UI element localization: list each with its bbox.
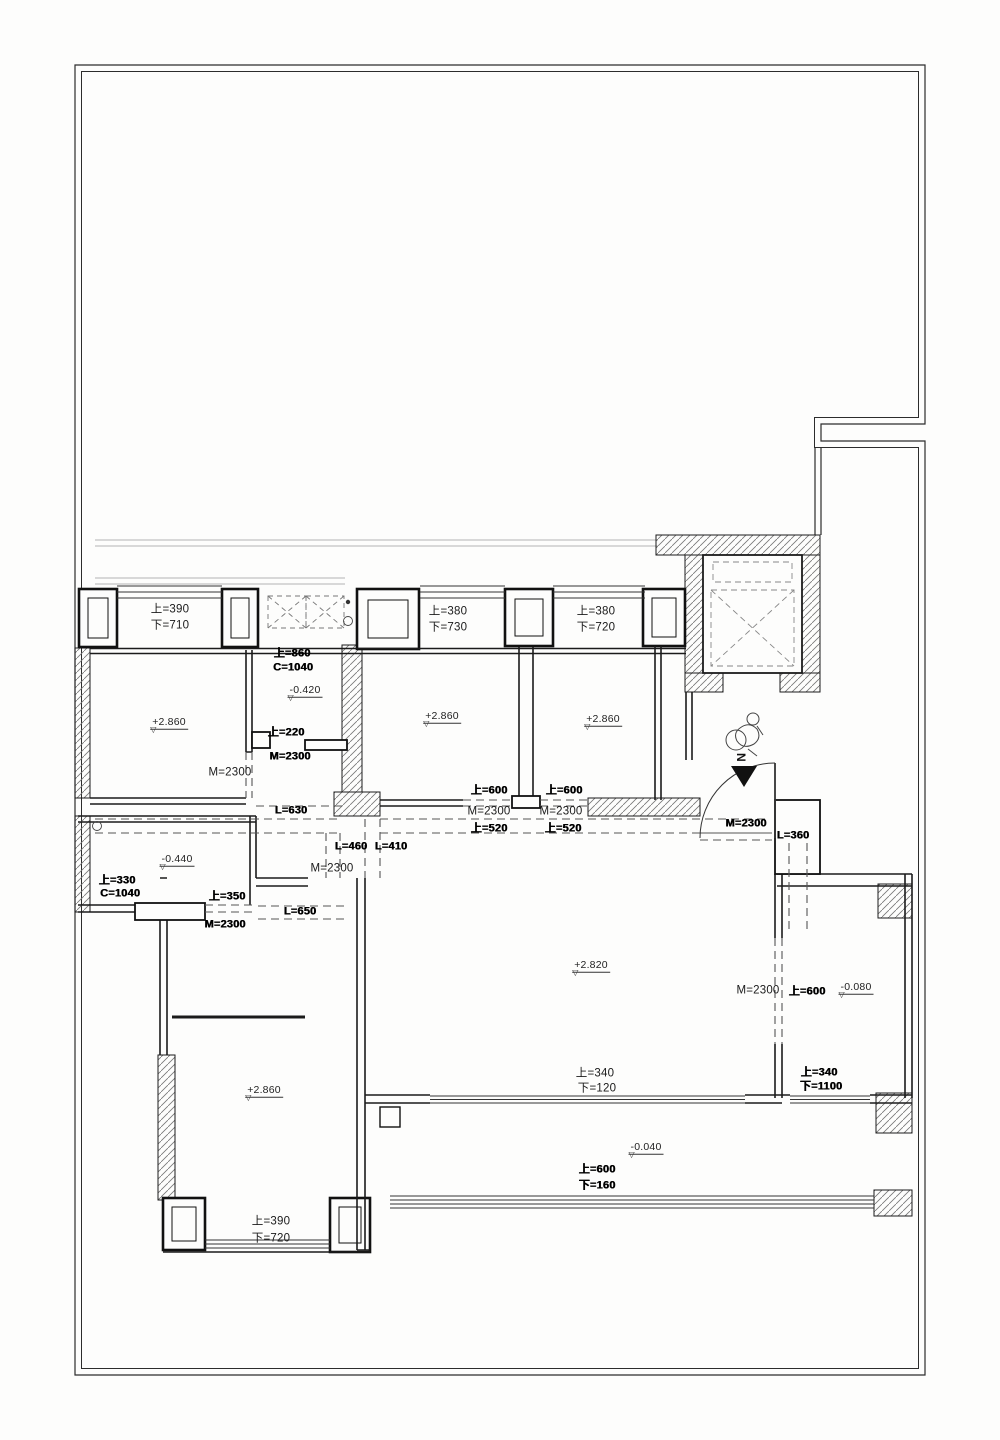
dashed-demolition-lines bbox=[95, 752, 807, 1044]
north-arrow-icon: N bbox=[731, 753, 757, 787]
floor-plan-drawing: N bbox=[0, 0, 1000, 1440]
dot-fixture bbox=[346, 600, 350, 604]
person-figure-icon bbox=[726, 713, 763, 756]
round-fixture bbox=[344, 617, 353, 626]
walls bbox=[78, 646, 912, 1252]
round-fixture bbox=[93, 822, 102, 831]
roof-edge-lines bbox=[95, 540, 658, 584]
north-label: N bbox=[734, 753, 748, 762]
windows bbox=[117, 586, 874, 1252]
elevator-shaft bbox=[703, 555, 802, 673]
ceiling-fixture bbox=[268, 596, 344, 628]
floor-plan-sheet: N 上=390下=710上=380下=730上=380下=720上=860C=1… bbox=[0, 0, 1000, 1440]
wall-piers bbox=[135, 732, 820, 1127]
outer-boundary bbox=[75, 65, 925, 1375]
